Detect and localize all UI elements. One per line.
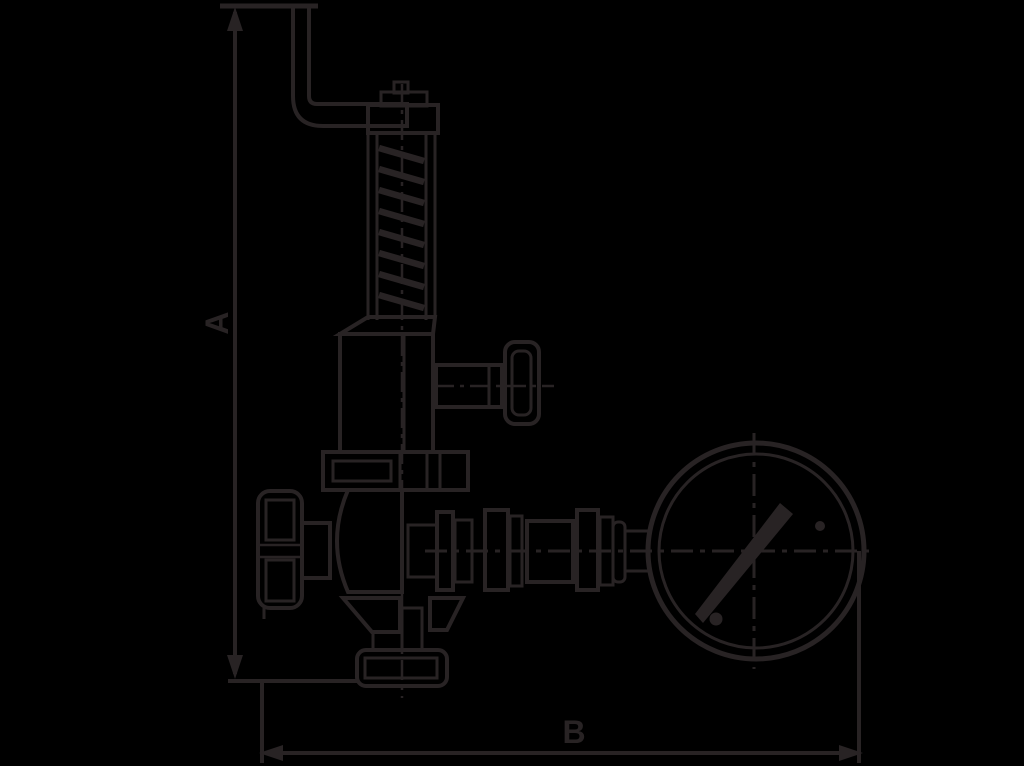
outlet-nut [402, 608, 422, 650]
dimension-a-arrow-down [227, 655, 243, 679]
centerlines [402, 84, 872, 698]
bonnet-housing [340, 334, 433, 452]
gauge-needle [695, 503, 793, 623]
side-outlet [436, 342, 539, 424]
body-skirt-left [343, 598, 400, 632]
body-outline [337, 490, 402, 592]
union-face [333, 461, 391, 481]
lever-handle [220, 6, 407, 126]
lever-arm [293, 6, 407, 126]
bonnet-shoulder [340, 317, 435, 334]
outlet-cap-inner [512, 351, 531, 415]
gauge-dot-lower-left [710, 613, 723, 626]
union-nut [323, 452, 468, 490]
valve-technical-drawing: A B [0, 0, 1024, 766]
handwheel-stem [302, 523, 330, 578]
gauge-dot-right [815, 521, 825, 531]
union-band [323, 452, 468, 490]
dimension-a: A [199, 7, 357, 681]
body-skirt-right [430, 598, 463, 630]
outlet-cap-outer [505, 342, 539, 424]
spring-coil [379, 211, 424, 224]
bonnet [340, 317, 435, 452]
handwheel-spoke-top [266, 500, 294, 540]
valve-body [337, 490, 402, 592]
handwheel [258, 491, 330, 619]
dimension-b-label: B [562, 714, 585, 750]
dimension-a-arrow-up [227, 7, 243, 31]
drawing-canvas: A B [0, 0, 1024, 766]
outlet-stem [373, 632, 402, 650]
handwheel-spoke-bottom [266, 560, 294, 601]
dimension-a-label: A [199, 311, 235, 334]
